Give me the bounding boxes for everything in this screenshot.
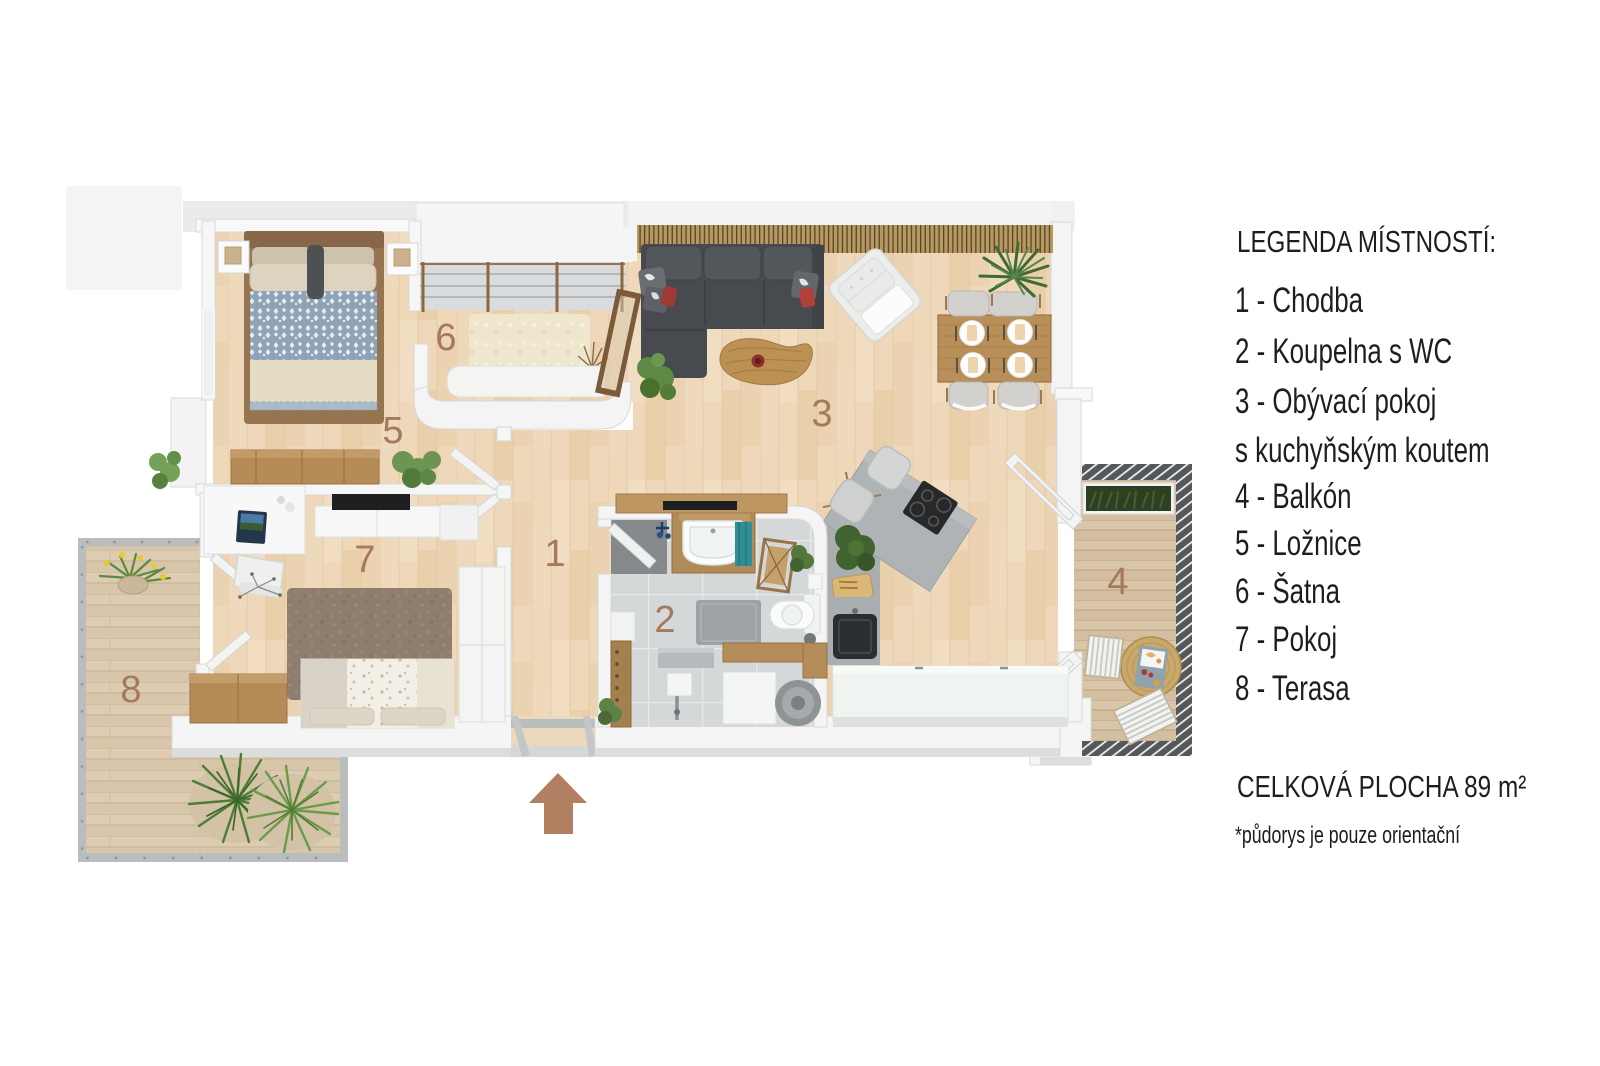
- svg-text:8 - Terasa: 8 - Terasa: [1235, 668, 1350, 708]
- svg-text:3: 3: [811, 393, 832, 435]
- svg-text:7 - Pokoj: 7 - Pokoj: [1235, 619, 1337, 659]
- svg-text:3 - Obývací pokoj: 3 - Obývací pokoj: [1235, 381, 1436, 421]
- svg-text:s kuchyňským koutem: s kuchyňským koutem: [1235, 430, 1490, 470]
- svg-text:2: 2: [654, 599, 675, 641]
- svg-text:1: 1: [544, 533, 565, 575]
- svg-text:6: 6: [435, 317, 456, 359]
- svg-text:7: 7: [354, 539, 375, 581]
- svg-text:5 - Ložnice: 5 - Ložnice: [1235, 523, 1362, 563]
- svg-text:2 - Koupelna s WC: 2 - Koupelna s WC: [1235, 331, 1452, 371]
- svg-text:*půdorys je pouze orientační: *půdorys je pouze orientační: [1235, 823, 1460, 849]
- svg-text:LEGENDA MÍSTNOSTÍ:: LEGENDA MÍSTNOSTÍ:: [1237, 224, 1496, 259]
- svg-text:4: 4: [1107, 561, 1128, 603]
- svg-text:5: 5: [382, 410, 403, 452]
- svg-text:1 - Chodba: 1 - Chodba: [1235, 280, 1364, 320]
- svg-text:8: 8: [120, 669, 141, 711]
- svg-text:CELKOVÁ PLOCHA 89 m²: CELKOVÁ PLOCHA 89 m²: [1237, 769, 1526, 803]
- svg-text:6 - Šatna: 6 - Šatna: [1235, 571, 1341, 611]
- svg-text:4 - Balkón: 4 - Balkón: [1235, 476, 1352, 516]
